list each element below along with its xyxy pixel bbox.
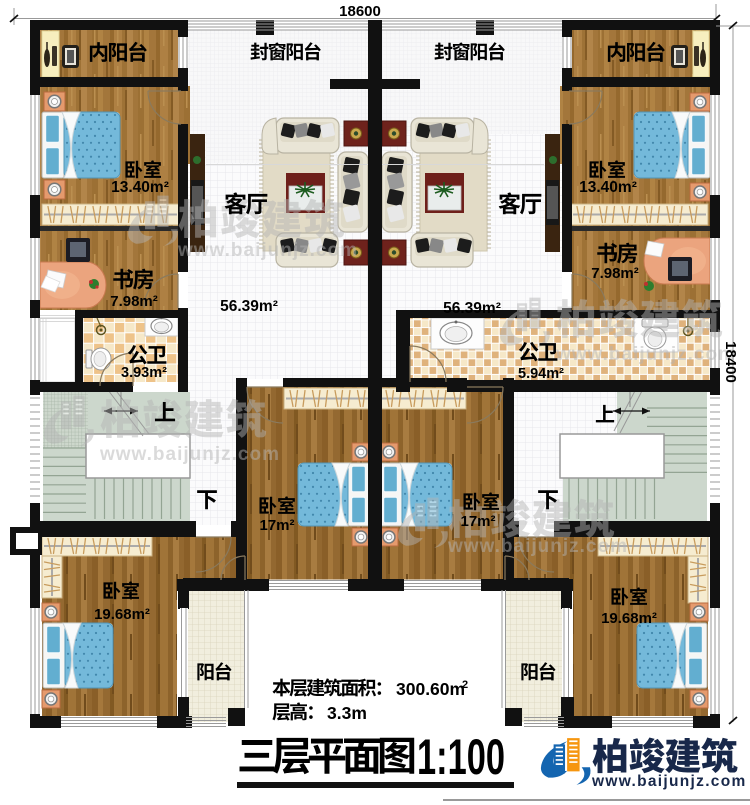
- svg-text:56.39m²: 56.39m²: [443, 300, 501, 317]
- svg-text:3.3m: 3.3m: [327, 703, 367, 723]
- svg-text:18400: 18400: [722, 341, 739, 383]
- svg-text:18600: 18600: [339, 3, 381, 20]
- svg-text:www.baijunjz.com: www.baijunjz.com: [99, 444, 280, 465]
- svg-text:17m²: 17m²: [259, 517, 294, 534]
- svg-text:7.98m²: 7.98m²: [591, 265, 639, 282]
- svg-text:56.39m²: 56.39m²: [220, 298, 278, 315]
- svg-text:www.baijunjz.com: www.baijunjz.com: [591, 773, 747, 790]
- svg-text:2: 2: [462, 679, 468, 691]
- svg-text:13.40m²: 13.40m²: [579, 179, 637, 196]
- svg-text:17m²: 17m²: [460, 513, 495, 530]
- svg-text:1:100: 1:100: [417, 729, 505, 785]
- svg-text:www.baijunjz.com: www.baijunjz.com: [447, 536, 628, 557]
- svg-text:www.baijunjz.com: www.baijunjz.com: [555, 344, 736, 365]
- svg-text:5.94m²: 5.94m²: [518, 366, 564, 382]
- svg-text:7.98m²: 7.98m²: [110, 293, 158, 310]
- svg-text:19.68m²: 19.68m²: [94, 606, 150, 623]
- svg-text:300.60m: 300.60m: [396, 679, 465, 699]
- svg-text:13.40m²: 13.40m²: [111, 179, 169, 196]
- svg-text:19.68m²: 19.68m²: [601, 610, 657, 627]
- svg-text:www.baijunjz.com: www.baijunjz.com: [177, 240, 358, 261]
- svg-text:3.93m²: 3.93m²: [121, 365, 167, 381]
